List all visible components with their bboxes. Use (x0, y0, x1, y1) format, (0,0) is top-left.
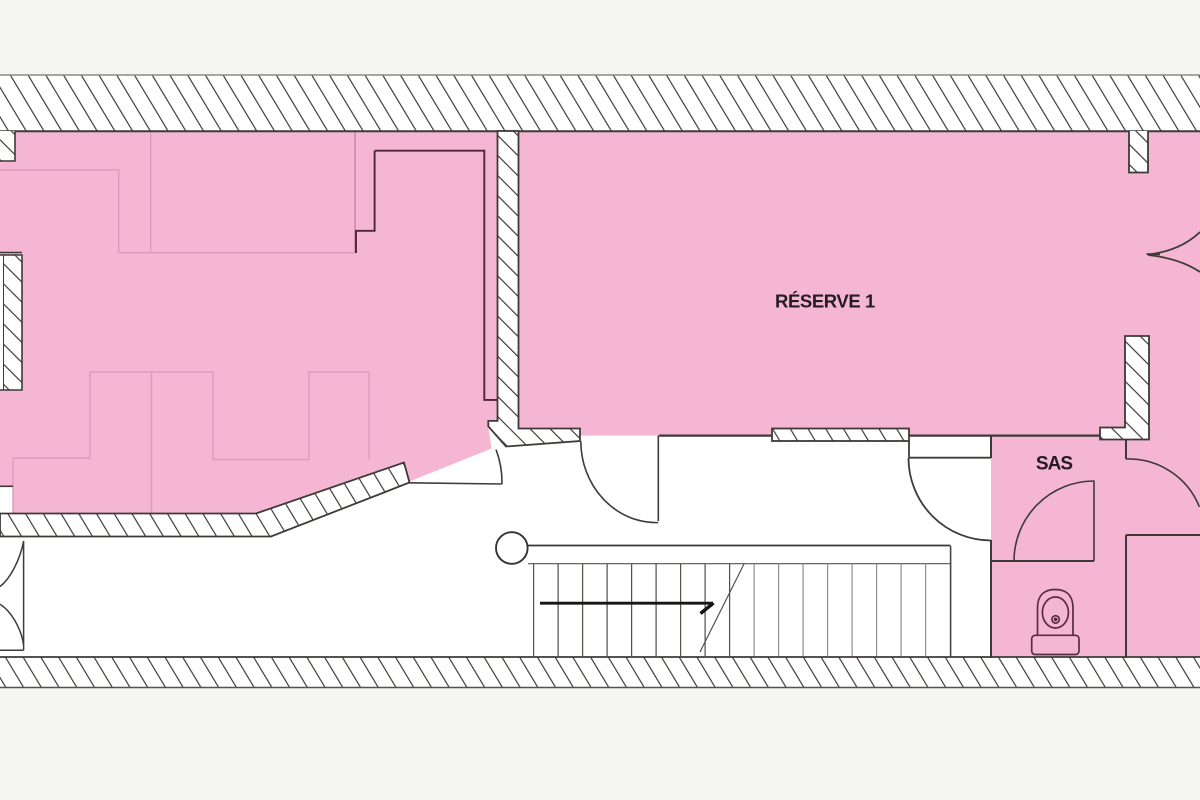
svg-text:SAS: SAS (1036, 454, 1073, 475)
svg-text:RÉSERVE 1: RÉSERVE 1 (775, 291, 875, 312)
